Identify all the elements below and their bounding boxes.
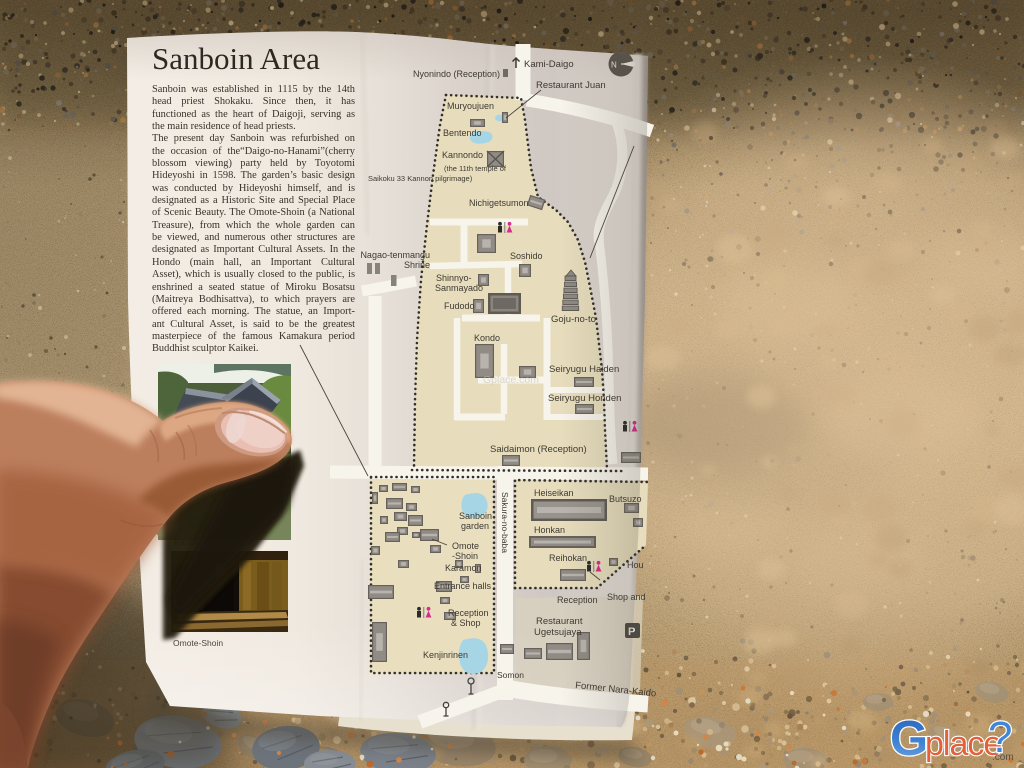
svg-text:Muryoujuen: Muryoujuen — [447, 101, 494, 111]
svg-text:& Shop: & Shop — [451, 618, 481, 628]
svg-text:-Shoin: -Shoin — [452, 551, 478, 561]
svg-text:garden: garden — [461, 521, 489, 531]
svg-text:Nyonindo (Reception): Nyonindo (Reception) — [413, 69, 500, 79]
svg-text:Kenjinrinen: Kenjinrinen — [423, 650, 468, 660]
svg-text:G: G — [890, 712, 926, 766]
svg-text:Omote-Shoin: Omote-Shoin — [173, 638, 223, 648]
svg-text:.com: .com — [992, 752, 1014, 763]
svg-text:Nagao-tenmangu: Nagao-tenmangu — [360, 250, 430, 260]
svg-text:Reception: Reception — [448, 608, 489, 618]
svg-text:Saikoku 33 Kannon pilgrimage): Saikoku 33 Kannon pilgrimage) — [368, 174, 473, 183]
svg-text:Shrine: Shrine — [404, 260, 430, 270]
svg-text:Sanboin: Sanboin — [459, 511, 492, 521]
svg-text:Entrance halls: Entrance halls — [434, 581, 492, 591]
svg-text:Shinnyo-: Shinnyo- — [436, 273, 472, 283]
svg-text:Sanmayado: Sanmayado — [435, 283, 483, 293]
svg-text:Karamon: Karamon — [445, 563, 482, 573]
svg-text:Bentendo: Bentendo — [443, 128, 482, 138]
svg-text:Omote: Omote — [452, 541, 479, 551]
svg-text:Fudodo: Fudodo — [444, 301, 475, 311]
svg-text:Kannondo: Kannondo — [442, 150, 483, 160]
